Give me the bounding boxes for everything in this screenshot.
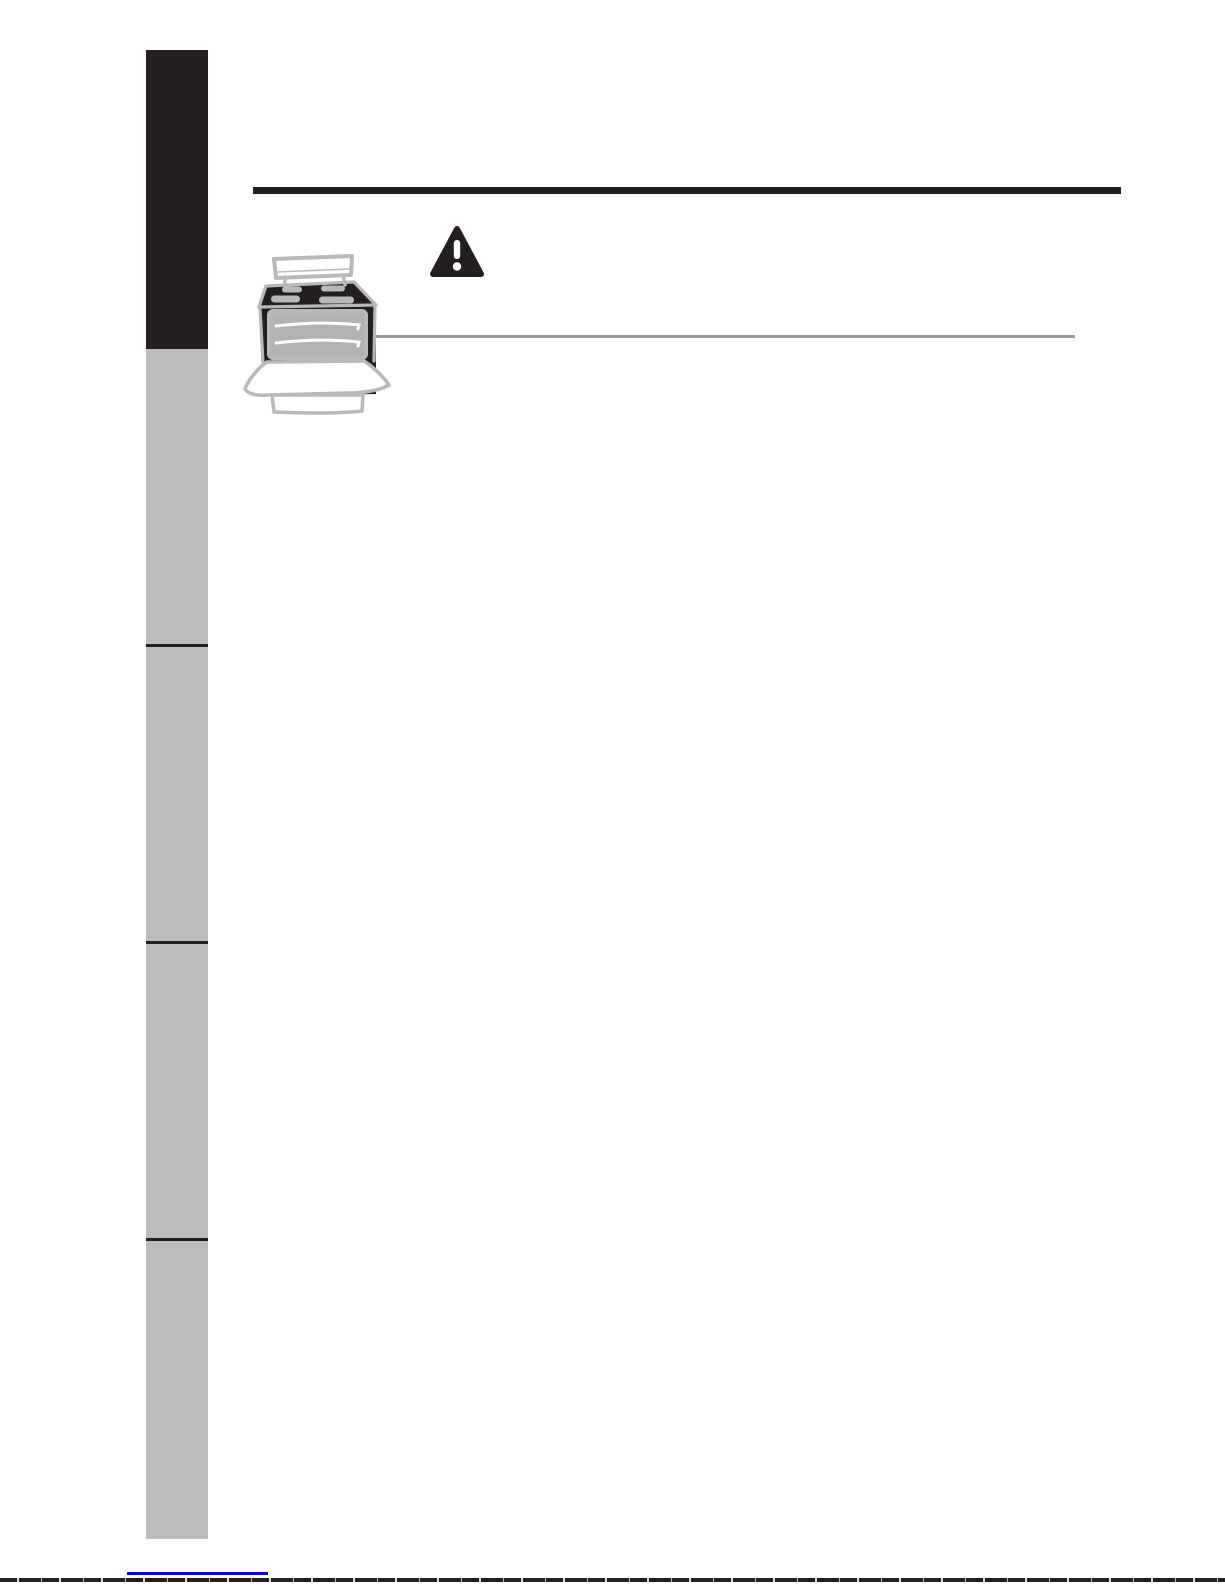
page-bottom-edge-line bbox=[0, 1578, 1225, 1582]
oven-cavity bbox=[269, 311, 366, 358]
sidebar-tab-2 bbox=[146, 349, 208, 644]
chapter-tab-strip bbox=[146, 50, 208, 1539]
exclamation-dot bbox=[453, 262, 461, 270]
storage-drawer bbox=[272, 395, 363, 413]
oven-door-open bbox=[245, 361, 389, 395]
footer-link-underline[interactable] bbox=[127, 1572, 268, 1575]
sidebar-tab-3 bbox=[146, 647, 208, 941]
page bbox=[0, 0, 1225, 1585]
section-title-rule bbox=[253, 187, 1121, 194]
sidebar-tab-4 bbox=[146, 944, 208, 1238]
page-bottom-edge-notches bbox=[0, 1578, 1225, 1582]
warning-triangle-icon bbox=[429, 225, 485, 279]
sidebar-tab-5 bbox=[146, 1241, 208, 1539]
exclamation-bar bbox=[454, 240, 460, 259]
open-door-range-sketch bbox=[235, 245, 395, 415]
subsection-hairline-rule bbox=[372, 335, 1075, 338]
sidebar-tab-1 bbox=[146, 50, 208, 349]
